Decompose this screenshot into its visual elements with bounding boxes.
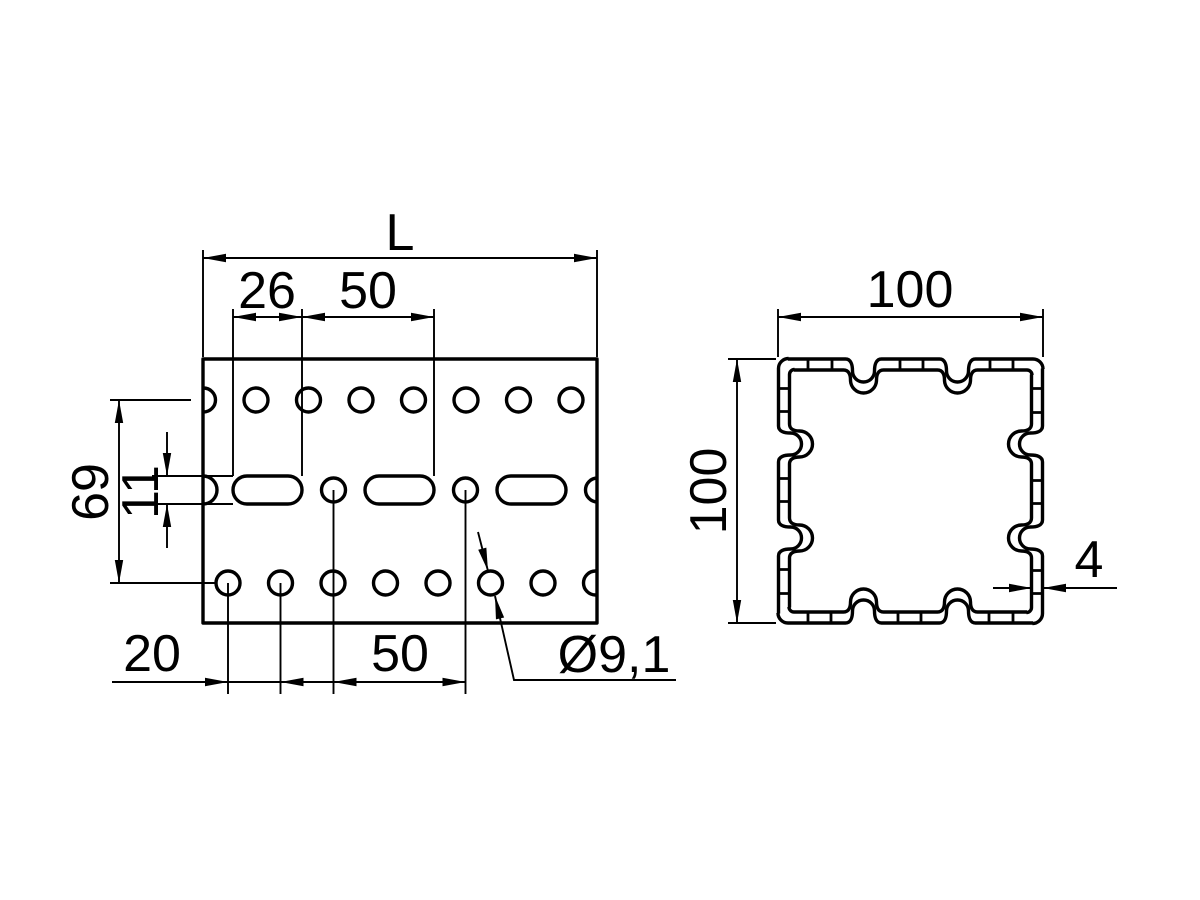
arrowhead	[281, 678, 304, 686]
arrowhead	[115, 560, 123, 583]
dim-text-20: 20	[123, 625, 181, 683]
arrowhead	[115, 400, 123, 423]
dim-text-100-width: 100	[867, 261, 954, 319]
section-side-top	[788, 358, 1043, 393]
dim-text-100-height: 100	[680, 448, 738, 535]
arrowhead	[443, 678, 466, 686]
arrowhead	[733, 359, 741, 382]
arrowhead	[1020, 313, 1043, 321]
section-profile	[777, 358, 1043, 624]
round-hole	[244, 388, 268, 412]
arrowhead	[411, 313, 434, 321]
section-side-bottom	[778, 589, 1033, 624]
arrowhead	[203, 254, 226, 262]
arrowhead	[778, 313, 801, 321]
hole-row-middle	[203, 476, 610, 504]
hole-pattern	[192, 388, 610, 595]
arrowhead	[478, 548, 492, 572]
arrowhead	[491, 595, 504, 619]
dimension-hole-diameter: Ø9,1	[478, 532, 676, 684]
round-hole	[507, 388, 531, 412]
arrowhead	[205, 678, 228, 686]
dim-text-4: 4	[1075, 531, 1104, 589]
drawing-canvas: L 26 50 69 11	[0, 0, 1200, 900]
round-hole	[531, 571, 555, 595]
round-hole	[559, 388, 583, 412]
dimension-wall-thickness: 4	[993, 531, 1117, 592]
slot-end-arc	[203, 476, 217, 504]
section-side-left	[777, 359, 812, 614]
dim-text-L: L	[386, 204, 415, 262]
dimension-slot-width: 11	[112, 432, 233, 548]
round-hole	[426, 571, 450, 595]
arrowhead	[334, 678, 357, 686]
slot-hole	[365, 476, 434, 504]
dim-text-50-top: 50	[339, 262, 397, 320]
round-hole	[374, 571, 398, 595]
round-hole	[454, 388, 478, 412]
arrowhead	[1009, 584, 1032, 592]
technical-drawing-page: L 26 50 69 11	[0, 0, 1200, 900]
arrowhead	[302, 313, 325, 321]
round-hole	[297, 388, 321, 412]
slot-hole	[497, 476, 566, 504]
dimension-slot-length-and-pitch: 26 50	[233, 262, 434, 476]
dim-text-diameter: Ø9,1	[558, 626, 671, 684]
arrowhead	[1043, 584, 1066, 592]
dim-text-11: 11	[112, 465, 170, 519]
round-hole	[349, 388, 373, 412]
slot-hole	[233, 476, 302, 504]
round-hole	[479, 571, 503, 595]
dimension-section-width: 100	[778, 261, 1043, 357]
hole-row-bottom	[216, 571, 608, 595]
dimension-section-height: 100	[680, 359, 776, 623]
section-view: 100 100 4	[680, 261, 1117, 624]
side-view: L 26 50 69 11	[62, 204, 676, 694]
dim-text-26: 26	[238, 262, 296, 320]
round-hole	[402, 388, 426, 412]
hole-row-top	[192, 388, 584, 412]
arrowhead	[574, 254, 597, 262]
arrowhead	[733, 600, 741, 623]
dim-text-50-bottom: 50	[371, 625, 429, 683]
